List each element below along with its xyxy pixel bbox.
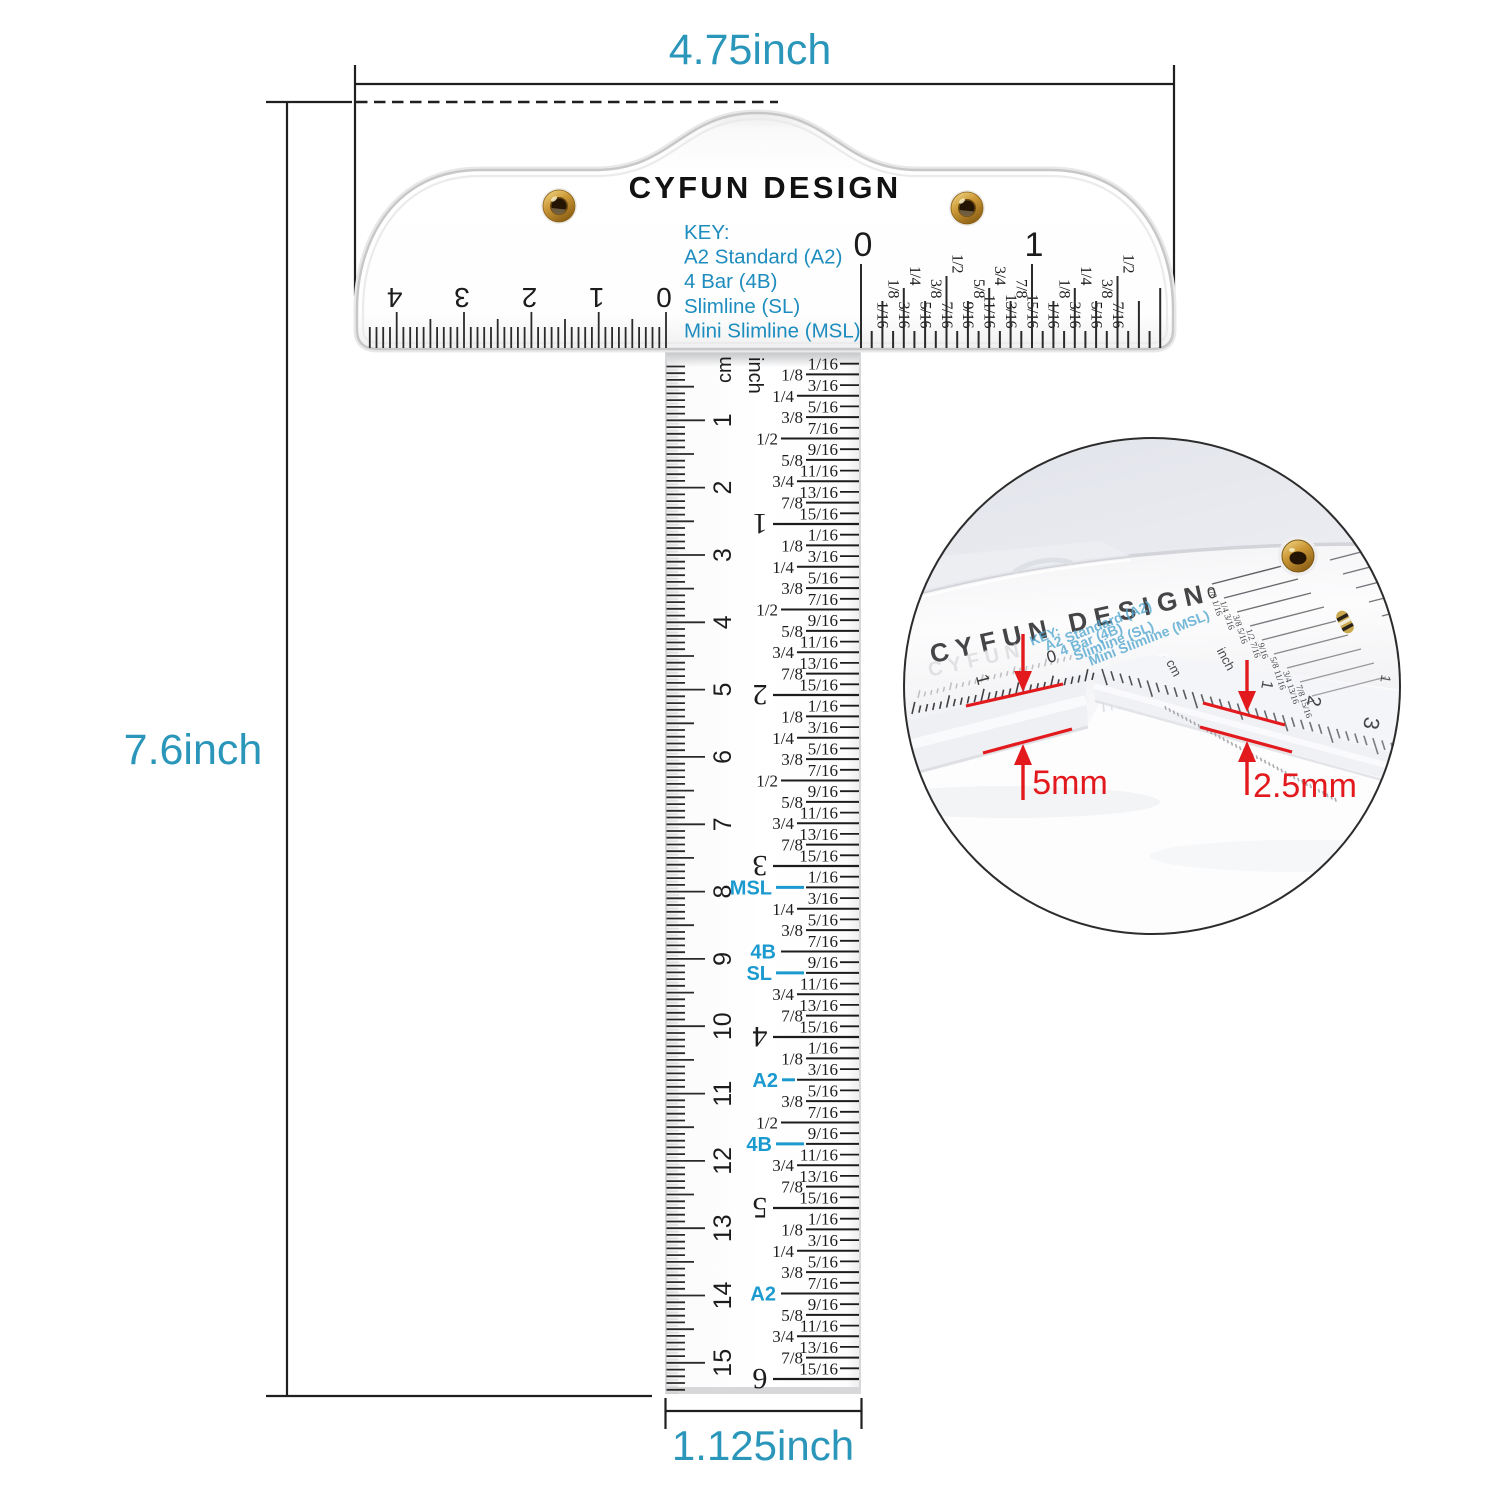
svg-text:1/8: 1/8 bbox=[781, 536, 803, 555]
svg-text:7/16: 7/16 bbox=[808, 932, 838, 951]
svg-text:1/4: 1/4 bbox=[906, 266, 923, 285]
svg-text:0: 0 bbox=[854, 226, 873, 264]
svg-text:15/16: 15/16 bbox=[799, 675, 838, 694]
svg-text:1/16: 1/16 bbox=[808, 868, 838, 887]
svg-text:7/16: 7/16 bbox=[808, 1103, 838, 1122]
svg-text:1/4: 1/4 bbox=[772, 900, 794, 919]
svg-text:13/16: 13/16 bbox=[799, 483, 838, 502]
svg-text:3/4: 3/4 bbox=[772, 643, 794, 662]
svg-text:1.125inch: 1.125inch bbox=[672, 1422, 854, 1469]
svg-text:1/16: 1/16 bbox=[808, 697, 838, 716]
svg-text:1/16: 1/16 bbox=[808, 1210, 838, 1229]
svg-text:9/16: 9/16 bbox=[808, 440, 838, 459]
svg-text:15: 15 bbox=[709, 1349, 737, 1377]
svg-text:1/4: 1/4 bbox=[1077, 266, 1094, 285]
svg-text:4.75inch: 4.75inch bbox=[669, 26, 832, 74]
svg-text:MSL: MSL bbox=[730, 877, 772, 899]
svg-text:4: 4 bbox=[709, 615, 737, 629]
svg-text:14: 14 bbox=[709, 1282, 737, 1310]
svg-text:12: 12 bbox=[709, 1147, 737, 1175]
svg-text:13/16: 13/16 bbox=[799, 996, 838, 1015]
svg-text:7/16: 7/16 bbox=[808, 761, 838, 780]
svg-text:5/16: 5/16 bbox=[808, 910, 838, 929]
svg-text:1/4: 1/4 bbox=[772, 387, 794, 406]
svg-text:11/16: 11/16 bbox=[800, 1317, 838, 1336]
svg-text:1/8: 1/8 bbox=[1055, 279, 1072, 298]
svg-text:15/16: 15/16 bbox=[799, 846, 838, 865]
svg-text:1/2: 1/2 bbox=[949, 254, 966, 273]
svg-text:4B: 4B bbox=[746, 1134, 772, 1156]
svg-text:4 Bar (4B): 4 Bar (4B) bbox=[684, 270, 777, 293]
svg-text:7.6inch: 7.6inch bbox=[124, 726, 263, 774]
svg-text:1/8: 1/8 bbox=[781, 707, 803, 726]
svg-text:3/8: 3/8 bbox=[781, 408, 803, 427]
svg-text:3: 3 bbox=[709, 548, 737, 562]
svg-text:7/16: 7/16 bbox=[808, 419, 838, 438]
svg-text:5/16: 5/16 bbox=[808, 1252, 838, 1271]
svg-text:1/2: 1/2 bbox=[756, 430, 778, 449]
svg-text:9/16: 9/16 bbox=[808, 1295, 838, 1314]
svg-text:Mini Slimline (MSL): Mini Slimline (MSL) bbox=[684, 319, 861, 342]
svg-text:SL: SL bbox=[746, 963, 772, 985]
svg-text:cm: cm bbox=[714, 356, 736, 383]
svg-text:A2: A2 bbox=[752, 1070, 778, 1092]
svg-text:2: 2 bbox=[522, 282, 538, 313]
svg-text:3/16: 3/16 bbox=[808, 547, 838, 566]
svg-text:13/16: 13/16 bbox=[799, 1338, 838, 1357]
svg-text:4: 4 bbox=[753, 1020, 768, 1053]
svg-text:1: 1 bbox=[709, 413, 737, 427]
svg-text:3/16: 3/16 bbox=[808, 889, 838, 908]
svg-text:11: 11 bbox=[709, 1081, 737, 1107]
svg-text:4B: 4B bbox=[750, 942, 776, 964]
svg-text:2: 2 bbox=[709, 481, 737, 495]
svg-text:1/2: 1/2 bbox=[756, 772, 778, 791]
svg-text:1/4: 1/4 bbox=[772, 558, 794, 577]
svg-text:5/16: 5/16 bbox=[808, 397, 838, 416]
svg-text:1/8: 1/8 bbox=[781, 365, 803, 384]
svg-text:3/16: 3/16 bbox=[808, 1231, 838, 1250]
svg-text:5mm: 5mm bbox=[1032, 764, 1108, 802]
svg-text:2.5mm: 2.5mm bbox=[1253, 767, 1357, 805]
svg-text:1/8: 1/8 bbox=[884, 279, 901, 298]
svg-text:15/16: 15/16 bbox=[799, 1188, 838, 1207]
svg-text:1: 1 bbox=[1025, 226, 1044, 264]
svg-text:5/16: 5/16 bbox=[808, 1081, 838, 1100]
svg-text:KEY:: KEY: bbox=[684, 221, 730, 244]
svg-text:1/2: 1/2 bbox=[756, 1114, 778, 1133]
svg-text:3/8: 3/8 bbox=[781, 921, 803, 940]
svg-text:6: 6 bbox=[709, 750, 737, 764]
svg-text:3/16: 3/16 bbox=[808, 376, 838, 395]
svg-text:3/8: 3/8 bbox=[781, 750, 803, 769]
svg-text:9/16: 9/16 bbox=[808, 782, 838, 801]
svg-text:CYFUN DESIGN: CYFUN DESIGN bbox=[629, 170, 902, 205]
svg-text:3/8: 3/8 bbox=[927, 279, 944, 298]
svg-text:0: 0 bbox=[656, 282, 672, 313]
svg-text:1/16: 1/16 bbox=[808, 526, 838, 545]
svg-text:5: 5 bbox=[709, 683, 737, 697]
svg-text:11/16: 11/16 bbox=[800, 975, 838, 994]
svg-text:11/16: 11/16 bbox=[800, 462, 838, 481]
svg-text:3/4: 3/4 bbox=[772, 1156, 794, 1175]
svg-text:3/4: 3/4 bbox=[772, 1327, 794, 1346]
svg-text:9/16: 9/16 bbox=[808, 953, 838, 972]
svg-text:7: 7 bbox=[709, 817, 737, 831]
svg-text:13/16: 13/16 bbox=[799, 654, 838, 673]
svg-text:3/8: 3/8 bbox=[781, 579, 803, 598]
svg-text:A2 Standard (A2): A2 Standard (A2) bbox=[684, 246, 842, 269]
svg-text:15/16: 15/16 bbox=[799, 1017, 838, 1036]
svg-text:3: 3 bbox=[454, 282, 470, 313]
svg-text:13: 13 bbox=[709, 1214, 737, 1242]
svg-text:3/4: 3/4 bbox=[772, 985, 794, 1004]
svg-text:inch: inch bbox=[744, 357, 766, 394]
svg-text:10: 10 bbox=[709, 1012, 737, 1040]
svg-text:13/16: 13/16 bbox=[799, 1167, 838, 1186]
svg-text:4: 4 bbox=[387, 282, 403, 313]
svg-text:1/16: 1/16 bbox=[808, 355, 838, 374]
svg-text:5/16: 5/16 bbox=[808, 568, 838, 587]
svg-text:3/16: 3/16 bbox=[808, 1060, 838, 1079]
svg-text:3/8: 3/8 bbox=[1098, 279, 1115, 298]
svg-text:9: 9 bbox=[709, 952, 737, 966]
svg-text:2: 2 bbox=[753, 678, 768, 711]
svg-text:11/16: 11/16 bbox=[800, 804, 838, 823]
svg-text:11/16: 11/16 bbox=[800, 633, 838, 652]
svg-text:9/16: 9/16 bbox=[808, 611, 838, 630]
svg-text:Slimline (SL): Slimline (SL) bbox=[684, 295, 800, 318]
svg-text:15/16: 15/16 bbox=[799, 1359, 838, 1378]
svg-text:1/2: 1/2 bbox=[756, 601, 778, 620]
svg-text:7/16: 7/16 bbox=[808, 1274, 838, 1293]
svg-text:5/16: 5/16 bbox=[808, 739, 838, 758]
svg-text:1/4: 1/4 bbox=[772, 729, 794, 748]
svg-text:1/4: 1/4 bbox=[772, 1242, 794, 1261]
svg-text:11/16: 11/16 bbox=[800, 1146, 838, 1165]
svg-text:6: 6 bbox=[753, 1362, 768, 1395]
svg-text:1: 1 bbox=[753, 507, 768, 540]
svg-text:1: 1 bbox=[589, 282, 605, 313]
svg-text:A2: A2 bbox=[750, 1284, 776, 1306]
svg-text:1/8: 1/8 bbox=[781, 1220, 803, 1239]
svg-text:15/16: 15/16 bbox=[799, 504, 838, 523]
svg-text:1/2: 1/2 bbox=[1120, 254, 1137, 273]
svg-text:1/16: 1/16 bbox=[808, 1039, 838, 1058]
svg-text:5: 5 bbox=[753, 1191, 768, 1224]
svg-text:13/16: 13/16 bbox=[799, 825, 838, 844]
svg-text:3/4: 3/4 bbox=[991, 266, 1008, 285]
svg-text:3/8: 3/8 bbox=[781, 1263, 803, 1282]
svg-text:3/8: 3/8 bbox=[781, 1092, 803, 1111]
svg-text:3/16: 3/16 bbox=[808, 718, 838, 737]
svg-text:3/4: 3/4 bbox=[772, 814, 794, 833]
svg-text:3/4: 3/4 bbox=[772, 472, 794, 491]
svg-text:9/16: 9/16 bbox=[808, 1124, 838, 1143]
svg-text:1/8: 1/8 bbox=[781, 1049, 803, 1068]
svg-text:7/16: 7/16 bbox=[808, 590, 838, 609]
